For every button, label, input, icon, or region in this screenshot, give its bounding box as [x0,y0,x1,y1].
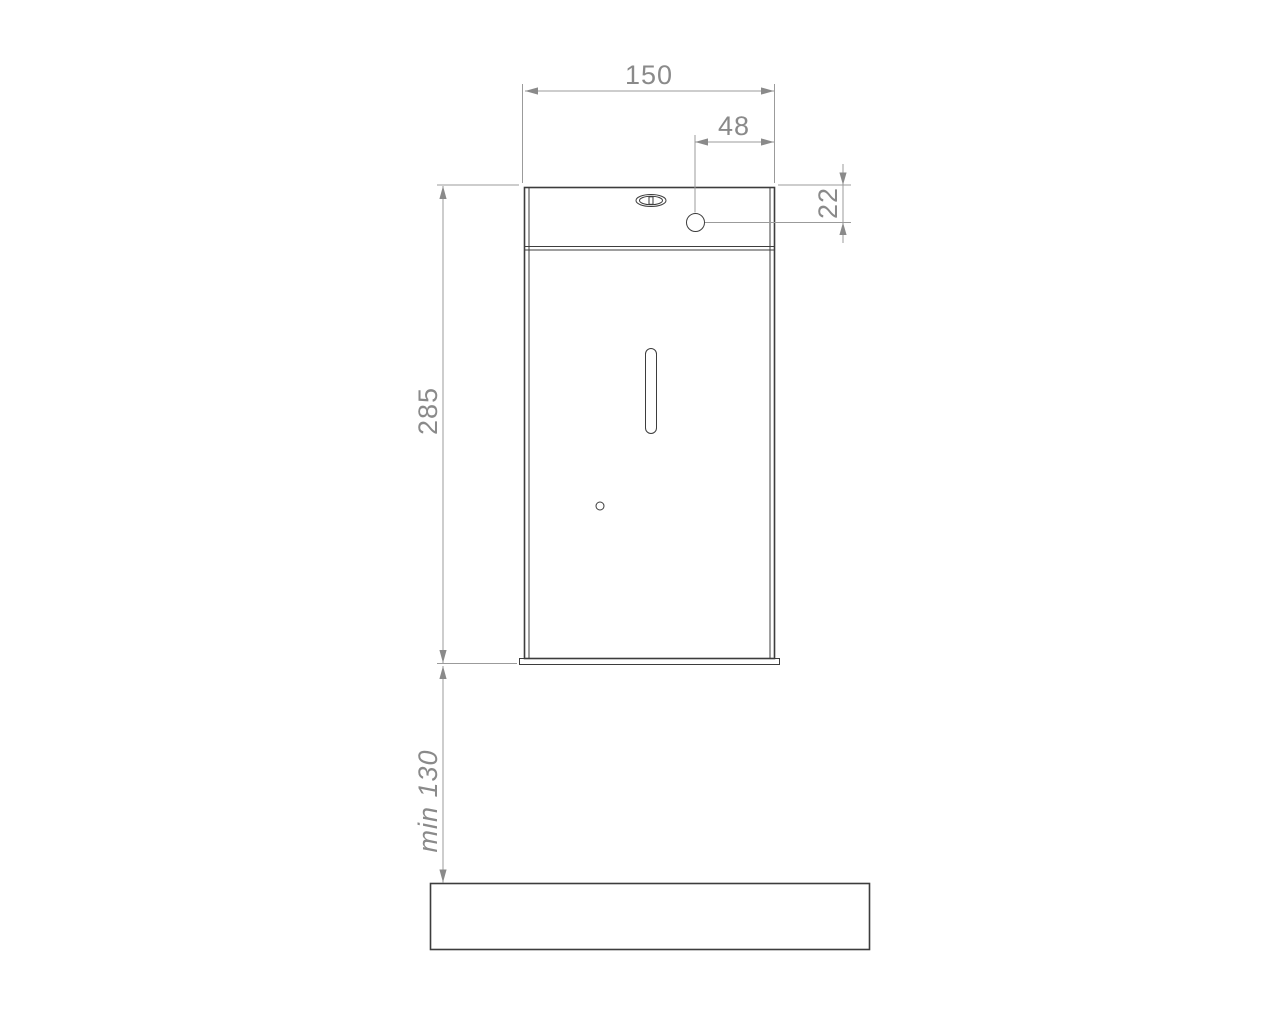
dim-height-arrow-top [439,186,446,199]
dim-width-arrow-right [761,87,774,94]
sight-window-slot [646,349,657,434]
dim-depth-arrow-top [839,173,846,186]
dim-hole-depth-label: 22 [813,187,843,219]
dim-clearance-min130: min 130 [413,666,447,883]
dim-width-label: 150 [625,60,673,90]
dim-width-arrow-left [525,87,538,94]
countertop-outline [431,884,870,950]
dim-height-285: 285 [413,185,519,664]
lock-keyhole-icon [636,195,666,207]
dim-hole-offset-48: 48 [695,111,774,213]
dim-hole-depth-22: 22 [705,164,851,243]
dim-clearance-arrow-top [439,666,446,679]
dim-clearance-arrow-bottom [439,870,446,883]
technical-drawing: 150 48 22 285 [0,0,1280,1024]
dispenser-body [520,188,780,665]
lid-hole-circle [687,214,705,232]
lock-inner-ellipse [640,196,663,204]
drawing-canvas: 150 48 22 285 [0,0,1280,1024]
dim-hole-offset-label: 48 [718,111,750,141]
dim-depth-arrow-bottom [839,223,846,236]
indicator-hole [596,502,604,510]
dim-height-arrow-bottom [439,650,446,663]
dim-height-label: 285 [413,387,443,435]
lock-key-slot [649,197,653,205]
dim-clearance-label: min 130 [413,749,443,852]
cabinet-outline [525,188,775,659]
bottom-lip [520,659,780,665]
dim-hole-arrow-left [695,138,708,145]
dim-hole-arrow-right [761,138,774,145]
